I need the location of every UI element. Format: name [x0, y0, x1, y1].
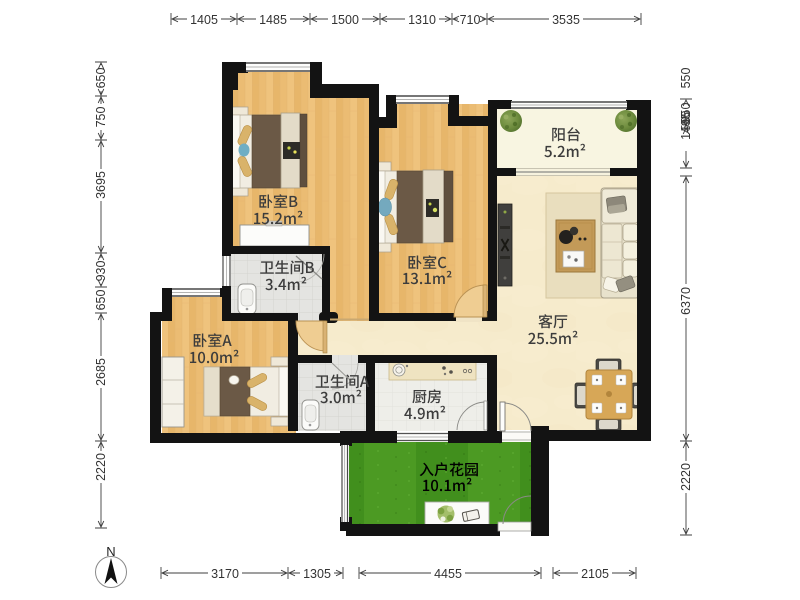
- svg-text:650: 650: [94, 290, 108, 311]
- svg-text:4455: 4455: [434, 567, 462, 581]
- svg-text:750: 750: [94, 107, 108, 128]
- svg-text:1310: 1310: [408, 13, 436, 27]
- svg-text:1485: 1485: [259, 13, 287, 27]
- svg-text:2220: 2220: [679, 463, 693, 491]
- svg-text:650: 650: [94, 68, 108, 89]
- svg-text:1405: 1405: [190, 13, 218, 27]
- svg-text:N: N: [106, 544, 115, 559]
- svg-text:6370: 6370: [679, 287, 693, 315]
- svg-text:3695: 3695: [94, 171, 108, 199]
- svg-text:2685: 2685: [94, 358, 108, 386]
- svg-text:2105: 2105: [581, 567, 609, 581]
- svg-text:3535: 3535: [552, 13, 580, 27]
- svg-text:930: 930: [94, 261, 108, 282]
- svg-text:1500: 1500: [331, 13, 359, 27]
- svg-text:710: 710: [460, 13, 481, 27]
- svg-text:3170: 3170: [211, 567, 239, 581]
- svg-text:550: 550: [679, 111, 693, 132]
- svg-text:550: 550: [679, 68, 693, 89]
- svg-text:1305: 1305: [303, 567, 331, 581]
- svg-text:2220: 2220: [94, 453, 108, 481]
